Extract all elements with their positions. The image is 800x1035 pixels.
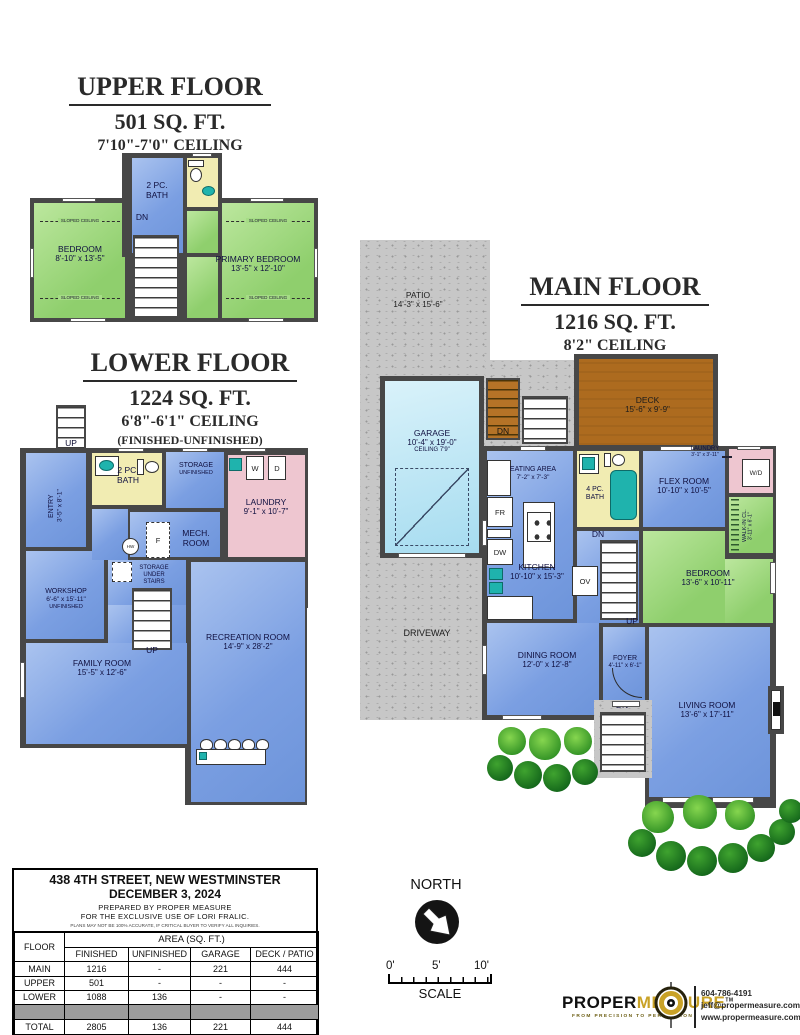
bath-line2: BATH (108, 475, 148, 485)
room-dims: 14'-9" x 28'-2" (190, 642, 306, 651)
main-floor-title-text: MAIN FLOOR (521, 272, 708, 306)
logo-phone: 604-786-4191 (701, 988, 800, 1000)
scale-label: SCALE (386, 986, 494, 1001)
floor-col-header: FLOOR (15, 932, 65, 962)
fridge-icon: FR (487, 497, 513, 527)
deck-stairs-dn-label: DN (488, 426, 518, 436)
garage-label: GARAGE10'-4" x 19'-0"CEILING 7'9" (388, 428, 476, 455)
table-row-lower: LOWER 1088 136 - - (15, 990, 319, 1004)
laundry-tub-icon (229, 458, 242, 471)
cell-garage: 221 (191, 962, 251, 976)
main-floor-area: 1216 SQ. FT. (515, 309, 715, 335)
toilet-tank-icon (604, 453, 611, 467)
prepared-by-line: PREPARED BY PROPER MEASURE (14, 903, 316, 912)
room-note: UNFINISHED (26, 604, 106, 610)
washer-dryer-icon: W/D (742, 459, 770, 487)
room-dims: 12'-0" x 12'-8" (493, 660, 601, 669)
area-table: FLOOR AREA (SQ. FT.) FINISHED UNFINISHED… (14, 931, 319, 1035)
lower-stairs (132, 588, 172, 650)
logo-contact: 604-786-4191 jeff@propermeasure.com www.… (701, 988, 800, 1024)
logo-target-svg (652, 982, 690, 1028)
cell-garage: - (191, 990, 251, 1004)
lower-storage-label: STORAGEUNFINISHED (168, 462, 224, 477)
bush (779, 799, 800, 823)
cell-finished: 2805 (65, 1020, 129, 1034)
north-compass-icon (413, 898, 461, 951)
bush (683, 795, 717, 829)
cell-deck: - (251, 976, 319, 990)
bush (628, 829, 656, 857)
sink-icon (202, 186, 215, 196)
lower-floor-title: LOWER FLOOR (65, 348, 315, 382)
sloped-ceiling-label: SLOPED CEILING (58, 295, 102, 300)
sink-icon (582, 457, 595, 470)
date-line: DECEMBER 3, 2024 (14, 887, 316, 901)
main-up-label: UP (618, 616, 646, 626)
room-dims: 6'-6" x 15'-11" (26, 596, 106, 604)
window (502, 715, 542, 720)
sloped-ceiling-line: SLOPED CEILING (40, 298, 120, 304)
bush (725, 800, 755, 830)
sloped-ceiling-label: SLOPED CEILING (246, 218, 290, 223)
storage-box-icon (112, 562, 132, 582)
window (182, 448, 208, 452)
window (192, 153, 212, 157)
upper-bath-label: 2 PC.BATH (134, 180, 180, 200)
bush (564, 727, 592, 755)
counter (487, 529, 511, 538)
logo-divider (694, 986, 696, 1028)
window (20, 662, 25, 698)
garage-door-swing (395, 468, 469, 546)
lower-floor-ceiling: 6'8"-6'1" CEILING (65, 413, 315, 431)
bush (656, 841, 686, 871)
room-name: BEDROOM (653, 568, 763, 578)
sofa-cushion (200, 739, 213, 750)
room-dims: 15'-5" x 12'-6" (42, 668, 162, 677)
dryer-icon: D (268, 456, 286, 480)
lower-hall-fill (92, 509, 128, 560)
mech-line2: ROOM (172, 538, 220, 548)
room-name: LIVING ROOM (652, 700, 762, 710)
bush (687, 846, 717, 876)
room-dims: 10'-10" x 15'-3" (497, 572, 577, 581)
room-name: ENTRY (48, 465, 56, 547)
col-finished: FINISHED (65, 947, 129, 961)
north-label: NORTH (404, 877, 468, 894)
window (250, 198, 284, 202)
lower-understairs-label: STORAGEUNDERSTAIRS (132, 565, 176, 586)
room-dims: 13'-6" x 10'-11" (653, 578, 763, 587)
main-bath-label: 4 PC.BATH (578, 486, 612, 503)
cell-finished: 501 (65, 976, 129, 990)
window (248, 318, 284, 322)
north-arrow-svg (413, 898, 461, 946)
area-header-row: FLOOR AREA (SQ. FT.) (15, 932, 319, 947)
room-dims: 8'-10" x 13'-5" (36, 254, 124, 263)
upper-bedroom-label: BEDROOM8'-10" x 13'-5" (36, 244, 124, 263)
lower-floor-note: (FINISHED-UNFINISHED) (65, 433, 315, 448)
main-stairs (600, 540, 638, 620)
eating-area-label: EATING AREA7'-2" x 7'-3" (493, 466, 573, 482)
exclusive-use-line: FOR THE EXCLUSIVE USE OF LORI FRALIC. (14, 912, 316, 921)
cell-deck: 444 (251, 962, 319, 976)
spacer-cell (65, 1005, 129, 1020)
bath-line2: BATH (578, 494, 612, 502)
bush (498, 727, 526, 755)
lower-floor-area: 1224 SQ. FT. (65, 385, 315, 411)
bush (514, 761, 542, 789)
mech-line1: MECH. (172, 528, 220, 538)
cell-unfinished: - (129, 976, 191, 990)
living-label: LIVING ROOM13'-6" x 17'-11" (652, 700, 762, 719)
spacer-cell (191, 1005, 251, 1020)
flex-room-label: FLEX ROOM10'-10" x 10'-5" (640, 476, 728, 495)
room-name: FAMILY ROOM (42, 658, 162, 668)
furnace-icon: F (146, 522, 170, 558)
lower-family-label: FAMILY ROOM15'-5" x 12'-6" (42, 658, 162, 677)
bush (543, 764, 571, 792)
room-dims: 10'-10" x 10'-5" (640, 486, 728, 495)
lower-floor-title-text: LOWER FLOOR (83, 348, 298, 382)
room-name: DINING ROOM (493, 650, 601, 660)
window (30, 248, 34, 278)
lower-rec-label: RECREATION ROOM14'-9" x 28'-2" (190, 632, 306, 651)
upper-floor-title-text: UPPER FLOOR (69, 72, 271, 106)
sloped-ceiling-line: SLOPED CEILING (226, 298, 310, 304)
upper-floor-area: 501 SQ. FT. (55, 109, 285, 135)
window (70, 318, 106, 322)
window (482, 520, 487, 546)
room-name: WORKSHOP (26, 588, 106, 596)
cell-finished: 1216 (65, 962, 129, 976)
room-name: FLEX ROOM (640, 476, 728, 486)
room-name: DECK (605, 395, 690, 405)
upper-floor-title-block: UPPER FLOOR 501 SQ. FT. 7'10"-7'0" CEILI… (55, 72, 285, 155)
driveway-label: DRIVEWAY (382, 628, 472, 639)
room-note: UNFINISHED (168, 470, 224, 476)
upper-closet-fill (187, 211, 218, 253)
scale-0: 0' (386, 960, 395, 972)
toilet-tank-icon (188, 160, 204, 167)
room-dims: 13'-6" x 17'-11" (652, 710, 762, 719)
front-door-opening (612, 701, 640, 707)
room-dims: 10'-4" x 19'-0" (388, 438, 476, 447)
room-name: STORAGE (168, 462, 224, 470)
upper-floor-title: UPPER FLOOR (55, 72, 285, 106)
room-name: FOYER (599, 655, 651, 663)
walkin-closet-label: WALK-IN CL.3'-11" x 6'-1" (742, 500, 754, 552)
scale-ticks-labels: 0' 5' 10' (386, 960, 494, 974)
window (482, 645, 487, 675)
col-deck-patio: DECK / PATIO (251, 947, 319, 961)
main-bedroom-label: BEDROOM13'-6" x 10'-11" (653, 568, 763, 587)
lower-up-top-label: UP (58, 438, 84, 448)
table-row-upper: UPPER 501 - - - (15, 976, 319, 990)
sloped-ceiling-label: SLOPED CEILING (246, 295, 290, 300)
logo-brand-proper: PROPER (562, 993, 637, 1012)
lower-floor-title-block: LOWER FLOOR 1224 SQ. FT. 6'8"-6'1" CEILI… (65, 348, 315, 448)
cell-unfinished: - (129, 962, 191, 976)
room-dims: 15'-6" x 9'-9" (605, 405, 690, 414)
lower-entry-label: ENTRY3'-5" x 8'-1" (48, 465, 64, 547)
cell-unfinished: 136 (129, 990, 191, 1004)
bath-line1: 2 PC. (108, 465, 148, 475)
room-name: EATING AREA (493, 466, 573, 474)
window (737, 446, 761, 450)
dining-label: DINING ROOM12'-0" x 12'-8" (493, 650, 601, 669)
patio-label: PATIO14'-3" x 15'-6" (373, 290, 463, 309)
sloped-ceiling-line: SLOPED CEILING (40, 221, 120, 227)
room-dims: 3'-5" x 8'-1" (56, 465, 64, 547)
upper-dn-label: DN (130, 212, 154, 222)
logo-target-icon (652, 982, 690, 1033)
upper-primary-label: PRIMARY BEDROOM13'-5" x 12'-10" (208, 254, 308, 273)
upper-bath-line1: 2 PC. (134, 180, 180, 190)
upper-bath-line2: BATH (134, 190, 180, 200)
room-name: GARAGE (388, 428, 476, 438)
kitchen-label: KITCHEN10'-10" x 15'-3" (497, 562, 577, 581)
lower-mech-label: MECH.ROOM (172, 528, 220, 548)
main-floor-ceiling: 8'2" CEILING (515, 337, 715, 355)
sloped-ceiling-line: SLOPED CEILING (226, 221, 310, 227)
closet-rod-hatch (731, 499, 739, 551)
door-opening (520, 446, 546, 451)
main-dn-label: DN (584, 529, 612, 539)
logo-email: jeff@propermeasure.com (701, 1000, 800, 1012)
spacer-row (15, 1005, 319, 1020)
lower-rec-fill (191, 562, 305, 802)
cell-floor: UPPER (15, 976, 65, 990)
room-dims: 3'-11" x 6'-1" (748, 500, 754, 552)
room-name: PATIO (373, 290, 463, 300)
main-floor-title: MAIN FLOOR (515, 272, 715, 306)
spacer-cell (15, 1005, 65, 1020)
hot-water-tank-icon: HW (122, 538, 139, 555)
bathtub-icon (610, 470, 637, 520)
room-dims: 9'-1" x 10'-7" (226, 507, 306, 516)
room-name: PRIMARY BEDROOM (208, 254, 308, 264)
lower-laundry-label: LAUNDRY9'-1" x 10'-7" (226, 497, 306, 516)
garage-door-opening (398, 553, 466, 558)
scale-bar: 0' 5' 10' SCALE (386, 960, 494, 1001)
toilet-bowl-icon (190, 168, 202, 182)
floor-plan-canvas: UPPER FLOOR 501 SQ. FT. 7'10"-7'0" CEILI… (0, 0, 800, 1035)
bush (718, 843, 748, 873)
sloped-ceiling-label: SLOPED CEILING (58, 218, 102, 223)
bush (642, 801, 674, 833)
foyer-label: FOYER4'-11" x 6'-1" (599, 655, 651, 670)
bath-line1: 4 PC. (578, 486, 612, 494)
cell-garage: 221 (191, 1020, 251, 1034)
room-dims: 4'-11" x 6'-1" (599, 663, 651, 670)
spacer-cell (251, 1005, 319, 1020)
cell-floor: LOWER (15, 990, 65, 1004)
room-name: RECREATION ROOM (190, 632, 306, 642)
toilet-bowl-icon (612, 454, 625, 466)
table-row-total: TOTAL 2805 136 221 444 (15, 1020, 319, 1034)
col-unfinished: UNFINISHED (129, 947, 191, 961)
bush (572, 759, 598, 785)
logo-website: www.propermeasure.com (701, 1012, 800, 1024)
room-dims: 7'-2" x 7'-3" (493, 474, 573, 482)
front-steps (600, 712, 646, 772)
bush (529, 728, 561, 760)
room-note: CEILING 7'9" (388, 447, 476, 454)
understairs-line2: UNDER (132, 572, 176, 579)
sofa-cushion-accent (199, 752, 207, 760)
spacer-cell (129, 1005, 191, 1020)
disclaimer-line: PLANS MAY NOT BE 100% ACCURATE, IF CRITI… (14, 923, 316, 928)
washer-icon: W (246, 456, 264, 480)
sofa-cushion (228, 739, 241, 750)
room-dims: 14'-3" x 15'-6" (373, 300, 463, 309)
scale-ruler (388, 974, 492, 984)
window (240, 448, 266, 452)
window (62, 198, 96, 202)
sofa-cushion (214, 739, 227, 750)
lower-up-label: UP (138, 645, 166, 655)
upper-stairs (133, 235, 179, 318)
scale-10: 10' (474, 960, 489, 972)
main-floor-title-block: MAIN FLOOR 1216 SQ. FT. 8'2" CEILING (515, 272, 715, 355)
col-garage: GARAGE (191, 947, 251, 961)
info-table: 438 4TH STREET, NEW WESTMINSTER DECEMBER… (12, 868, 318, 1035)
window (770, 562, 776, 594)
understairs-line3: STAIRS (132, 579, 176, 586)
window (118, 448, 144, 452)
cell-floor: MAIN (15, 962, 65, 976)
area-group-header: AREA (SQ. FT.) (65, 932, 319, 947)
table-row-main: MAIN 1216 - 221 444 (15, 962, 319, 976)
room-dims: 13'-5" x 12'-10" (208, 264, 308, 273)
room-name: LAUNDRY (226, 497, 306, 507)
cell-deck: 444 (251, 1020, 319, 1034)
fireplace-box-icon (773, 702, 780, 716)
cell-floor: TOTAL (15, 1020, 65, 1034)
kitchen-sink-icon (489, 582, 503, 594)
sofa-cushion (242, 739, 255, 750)
rear-steps (522, 396, 568, 444)
cell-garage: - (191, 976, 251, 990)
laundry-leader-line (722, 456, 732, 458)
room-name: BEDROOM (36, 244, 124, 254)
understairs-line1: STORAGE (132, 565, 176, 572)
scale-5: 5' (432, 960, 441, 972)
lower-storage-fill (166, 452, 224, 508)
room-name: KITCHEN (497, 562, 577, 572)
cell-unfinished: 136 (129, 1020, 191, 1034)
window (314, 248, 318, 278)
bush (487, 755, 513, 781)
cell-finished: 1088 (65, 990, 129, 1004)
lower-workshop-label: WORKSHOP6'-6" x 15'-11"UNFINISHED (26, 588, 106, 610)
sofa-cushion (256, 739, 269, 750)
lower-bath-label: 2 PC.BATH (108, 465, 148, 485)
address-line: 438 4TH STREET, NEW WESTMINSTER (14, 873, 316, 887)
counter (487, 596, 533, 620)
cell-deck: - (251, 990, 319, 1004)
deck-label: DECK15'-6" x 9'-9" (605, 395, 690, 414)
stove-icon (527, 512, 551, 542)
